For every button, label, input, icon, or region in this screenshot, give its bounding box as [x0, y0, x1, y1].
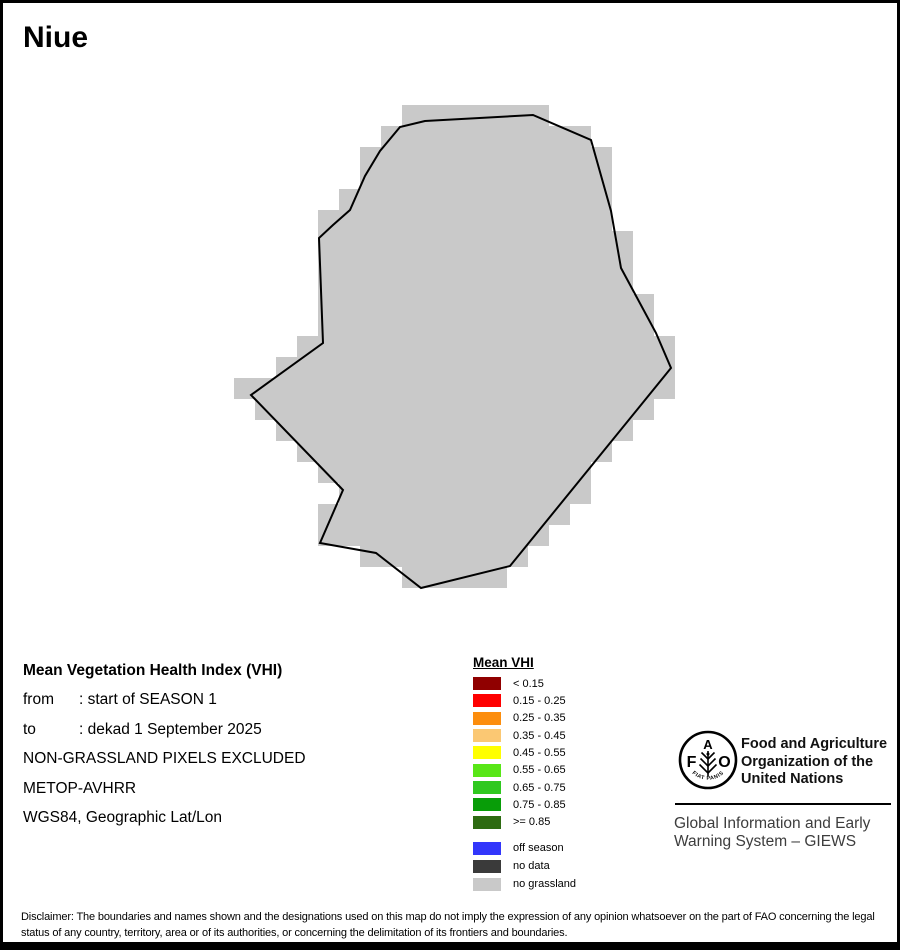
- raster-cell: [444, 462, 465, 483]
- raster-cell: [549, 315, 570, 336]
- raster-cell: [528, 420, 549, 441]
- raster-cell: [549, 147, 570, 168]
- legend-label: 0.35 - 0.45: [513, 730, 566, 742]
- raster-cell: [465, 273, 486, 294]
- raster-cell: [444, 147, 465, 168]
- raster-cell: [549, 252, 570, 273]
- raster-cell: [402, 210, 423, 231]
- legend-swatch: [473, 677, 501, 690]
- raster-cell: [549, 441, 570, 462]
- raster-cell: [423, 357, 444, 378]
- raster-cell: [591, 315, 612, 336]
- info-row-label: to: [23, 715, 79, 744]
- legend-row: off season: [473, 839, 576, 857]
- raster-cell: [360, 525, 381, 546]
- raster-cell: [528, 189, 549, 210]
- raster-cell: [423, 462, 444, 483]
- raster-cell: [549, 168, 570, 189]
- raster-cell: [423, 546, 444, 567]
- raster-cell: [570, 378, 591, 399]
- legend-label: >= 0.85: [513, 816, 550, 828]
- raster-cell: [549, 483, 570, 504]
- info-heading: Mean Vegetation Health Index (VHI): [23, 656, 306, 685]
- raster-cell: [423, 210, 444, 231]
- raster-cell: [507, 210, 528, 231]
- raster-cell: [381, 441, 402, 462]
- raster-cell: [507, 315, 528, 336]
- raster-cell: [465, 168, 486, 189]
- raster-cell: [360, 420, 381, 441]
- raster-cell: [591, 252, 612, 273]
- raster-cell: [528, 399, 549, 420]
- raster-cell: [486, 378, 507, 399]
- raster-cell: [423, 105, 444, 126]
- raster-cell: [612, 357, 633, 378]
- raster-cell: [570, 231, 591, 252]
- raster-cell: [381, 357, 402, 378]
- raster-cell: [360, 357, 381, 378]
- raster-cell: [654, 378, 675, 399]
- legend-swatch: [473, 781, 501, 794]
- raster-cell: [528, 483, 549, 504]
- raster-cell: [528, 462, 549, 483]
- raster-cell: [423, 273, 444, 294]
- raster-cell: [360, 336, 381, 357]
- raster-cell: [339, 420, 360, 441]
- info-row: METOP-AVHRR: [23, 774, 306, 803]
- raster-cell: [423, 294, 444, 315]
- info-row-value: WGS84, Geographic Lat/Lon: [23, 809, 222, 826]
- raster-cell: [339, 294, 360, 315]
- legend-swatch: [473, 712, 501, 725]
- raster-cell: [318, 420, 339, 441]
- raster-cell: [486, 357, 507, 378]
- raster-cell: [339, 231, 360, 252]
- raster-cell: [423, 399, 444, 420]
- legend-label: no data: [513, 860, 550, 872]
- raster-cell: [486, 105, 507, 126]
- raster-cell: [423, 336, 444, 357]
- raster-cell: [549, 462, 570, 483]
- legend-label: 0.15 - 0.25: [513, 695, 566, 707]
- raster-cell: [570, 294, 591, 315]
- raster-cell: [465, 189, 486, 210]
- legend-swatch: [473, 694, 501, 707]
- raster-cell: [402, 504, 423, 525]
- legend-title: Mean VHI: [473, 655, 576, 670]
- raster-cell: [465, 462, 486, 483]
- raster-cell: [465, 231, 486, 252]
- raster-cell: [507, 168, 528, 189]
- legend-row: no data: [473, 857, 576, 875]
- raster-cell: [486, 168, 507, 189]
- raster-cell: [465, 546, 486, 567]
- legend-row: < 0.15: [473, 675, 576, 692]
- raster-cell: [507, 462, 528, 483]
- raster-cell: [444, 357, 465, 378]
- vhi-legend: Mean VHI < 0.150.15 - 0.250.25 - 0.350.3…: [473, 655, 576, 894]
- legend-label: 0.45 - 0.55: [513, 747, 566, 759]
- raster-cell: [444, 252, 465, 273]
- giews-subtitle-line: Global Information and Early: [674, 815, 870, 833]
- raster-cell: [381, 252, 402, 273]
- legend-swatch: [473, 878, 501, 891]
- raster-cell: [381, 189, 402, 210]
- info-row: WGS84, Geographic Lat/Lon: [23, 803, 306, 832]
- raster-cell: [486, 336, 507, 357]
- raster-cell: [297, 399, 318, 420]
- raster-cell: [591, 357, 612, 378]
- raster-cell: [486, 273, 507, 294]
- raster-cell: [402, 189, 423, 210]
- raster-cell: [444, 168, 465, 189]
- info-row-value: : dekad 1 September 2025: [79, 721, 262, 738]
- raster-cell: [570, 273, 591, 294]
- raster-cell: [381, 315, 402, 336]
- legend-label: 0.25 - 0.35: [513, 712, 566, 724]
- raster-cell: [486, 525, 507, 546]
- raster-cell: [381, 294, 402, 315]
- fao-logo-letter-a: A: [703, 737, 713, 752]
- raster-cell: [402, 525, 423, 546]
- raster-cell: [339, 462, 360, 483]
- raster-cell: [444, 399, 465, 420]
- raster-cell: [360, 294, 381, 315]
- raster-cell: [423, 252, 444, 273]
- raster-cell: [339, 504, 360, 525]
- raster-cell: [486, 420, 507, 441]
- info-rows: from: start of SEASON 1to: dekad 1 Septe…: [23, 685, 306, 832]
- raster-cell: [549, 294, 570, 315]
- legend-label: off season: [513, 842, 564, 854]
- raster-cell: [360, 399, 381, 420]
- info-row-label: from: [23, 685, 79, 714]
- raster-cell: [570, 336, 591, 357]
- raster-cell: [444, 315, 465, 336]
- raster-cell: [507, 189, 528, 210]
- raster-cell: [318, 336, 339, 357]
- raster-cell: [528, 441, 549, 462]
- legend-row: 0.25 - 0.35: [473, 710, 576, 727]
- legend-extra-list: off seasonno datano grassland: [473, 839, 576, 894]
- legend-swatch: [473, 764, 501, 777]
- raster-cell: [486, 231, 507, 252]
- raster-cell: [507, 294, 528, 315]
- raster-cell: [339, 378, 360, 399]
- raster-cell: [570, 315, 591, 336]
- raster-cell: [402, 567, 423, 588]
- raster-cell: [360, 378, 381, 399]
- fao-name-line: Organization of the: [741, 754, 887, 772]
- raster-cell: [528, 210, 549, 231]
- legend-swatch: [473, 729, 501, 742]
- raster-cell: [507, 525, 528, 546]
- raster-cell: [402, 420, 423, 441]
- fao-name-line: United Nations: [741, 771, 887, 789]
- raster-cell: [339, 525, 360, 546]
- raster-cell: [402, 546, 423, 567]
- raster-cell: [486, 126, 507, 147]
- raster-cell: [339, 336, 360, 357]
- fao-name-line: Food and Agriculture: [741, 736, 887, 754]
- raster-cell: [528, 273, 549, 294]
- raster-cell: [360, 231, 381, 252]
- raster-cell: [444, 546, 465, 567]
- raster-cell: [528, 378, 549, 399]
- raster-cell: [381, 420, 402, 441]
- raster-cell: [402, 126, 423, 147]
- raster-cell: [549, 336, 570, 357]
- raster-cell: [402, 462, 423, 483]
- raster-cell: [612, 399, 633, 420]
- raster-cell: [507, 378, 528, 399]
- raster-cell: [570, 252, 591, 273]
- raster-cell: [465, 441, 486, 462]
- raster-cell: [402, 147, 423, 168]
- raster-cell: [318, 462, 339, 483]
- raster-cell: [570, 168, 591, 189]
- raster-cell: [318, 441, 339, 462]
- raster-cell: [486, 147, 507, 168]
- raster-cell: [255, 378, 276, 399]
- raster-cell: [360, 504, 381, 525]
- raster-cell: [570, 147, 591, 168]
- raster-cell: [612, 336, 633, 357]
- raster-cell: [549, 231, 570, 252]
- raster-cell: [507, 126, 528, 147]
- raster-cell: [486, 294, 507, 315]
- raster-cell: [507, 357, 528, 378]
- raster-cell: [591, 420, 612, 441]
- giews-subtitle: Global Information and EarlyWarning Syst…: [674, 815, 870, 850]
- raster-cell: [507, 336, 528, 357]
- info-row: from: start of SEASON 1: [23, 685, 306, 714]
- raster-cell: [528, 126, 549, 147]
- raster-cell: [465, 252, 486, 273]
- raster-cell: [318, 378, 339, 399]
- map-raster-layer: [234, 105, 675, 588]
- raster-cell: [444, 210, 465, 231]
- legend-row: 0.15 - 0.25: [473, 692, 576, 709]
- raster-cell: [549, 357, 570, 378]
- fao-logo-letter-f: F: [687, 754, 697, 771]
- raster-cell: [465, 378, 486, 399]
- raster-cell: [444, 483, 465, 504]
- raster-cell: [570, 441, 591, 462]
- raster-cell: [570, 357, 591, 378]
- raster-cell: [360, 273, 381, 294]
- raster-cell: [528, 315, 549, 336]
- raster-cell: [318, 231, 339, 252]
- raster-cell: [444, 231, 465, 252]
- raster-cell: [444, 420, 465, 441]
- raster-cell: [444, 105, 465, 126]
- raster-cell: [465, 147, 486, 168]
- raster-cell: [276, 378, 297, 399]
- raster-cell: [549, 378, 570, 399]
- info-row-value: METOP-AVHRR: [23, 780, 136, 797]
- raster-cell: [402, 273, 423, 294]
- legend-label: 0.75 - 0.85: [513, 799, 566, 811]
- raster-cell: [381, 504, 402, 525]
- raster-cell: [528, 525, 549, 546]
- info-row-value: : start of SEASON 1: [79, 691, 217, 708]
- raster-cell: [444, 378, 465, 399]
- raster-cell: [423, 525, 444, 546]
- legend-swatch: [473, 798, 501, 811]
- legend-row: 0.55 - 0.65: [473, 762, 576, 779]
- raster-cell: [549, 273, 570, 294]
- raster-cell: [402, 483, 423, 504]
- fao-name: Food and AgricultureOrganization of theU…: [741, 736, 887, 789]
- legend-swatch: [473, 842, 501, 855]
- raster-cell: [486, 315, 507, 336]
- raster-cell: [486, 189, 507, 210]
- raster-cell: [381, 483, 402, 504]
- legend-swatch: [473, 816, 501, 829]
- legend-row: 0.35 - 0.45: [473, 727, 576, 744]
- raster-cell: [381, 525, 402, 546]
- raster-cell: [549, 420, 570, 441]
- raster-cell: [381, 336, 402, 357]
- legend-row: 0.45 - 0.55: [473, 744, 576, 761]
- raster-cell: [612, 315, 633, 336]
- raster-cell: [381, 273, 402, 294]
- raster-cell: [612, 378, 633, 399]
- legend-swatch: [473, 746, 501, 759]
- raster-cell: [402, 252, 423, 273]
- map-page: Niue Mean Vegetation Health Index (VHI) …: [0, 0, 900, 950]
- raster-cell: [402, 315, 423, 336]
- raster-cell: [423, 147, 444, 168]
- legend-swatch: [473, 860, 501, 873]
- raster-cell: [381, 462, 402, 483]
- legend-class-list: < 0.150.15 - 0.250.25 - 0.350.35 - 0.450…: [473, 675, 576, 831]
- raster-cell: [528, 147, 549, 168]
- raster-cell: [360, 147, 381, 168]
- legend-row: >= 0.85: [473, 814, 576, 831]
- raster-cell: [486, 399, 507, 420]
- raster-cell: [591, 210, 612, 231]
- raster-cell: [339, 441, 360, 462]
- raster-cell: [612, 294, 633, 315]
- raster-cell: [297, 441, 318, 462]
- raster-cell: [402, 168, 423, 189]
- raster-cell: [381, 231, 402, 252]
- raster-cell: [465, 525, 486, 546]
- raster-cell: [465, 126, 486, 147]
- raster-cell: [591, 399, 612, 420]
- disclaimer-text: Disclaimer: The boundaries and names sho…: [21, 909, 889, 942]
- raster-cell: [486, 210, 507, 231]
- raster-cell: [402, 294, 423, 315]
- raster-cell: [360, 546, 381, 567]
- raster-cell: [465, 399, 486, 420]
- raster-cell: [507, 252, 528, 273]
- raster-cell: [465, 504, 486, 525]
- raster-cell: [360, 315, 381, 336]
- raster-cell: [423, 231, 444, 252]
- raster-cell: [549, 189, 570, 210]
- raster-cell: [486, 504, 507, 525]
- raster-cell: [402, 399, 423, 420]
- info-row: to: dekad 1 September 2025: [23, 715, 306, 744]
- raster-cell: [276, 399, 297, 420]
- info-row: NON-GRASSLAND PIXELS EXCLUDED: [23, 744, 306, 773]
- raster-cell: [507, 147, 528, 168]
- map-info-block: Mean Vegetation Health Index (VHI) from:…: [23, 656, 306, 832]
- raster-cell: [570, 420, 591, 441]
- raster-cell: [297, 420, 318, 441]
- raster-cell: [339, 357, 360, 378]
- raster-cell: [360, 252, 381, 273]
- raster-cell: [339, 273, 360, 294]
- raster-cell: [465, 420, 486, 441]
- legend-label: no grassland: [513, 878, 576, 890]
- raster-cell: [360, 189, 381, 210]
- raster-cell: [318, 357, 339, 378]
- org-divider: [675, 803, 891, 805]
- raster-cell: [528, 252, 549, 273]
- raster-cell: [381, 210, 402, 231]
- raster-cell: [423, 189, 444, 210]
- raster-cell: [360, 441, 381, 462]
- raster-cell: [570, 483, 591, 504]
- raster-cell: [339, 252, 360, 273]
- fao-logo-letter-o: O: [718, 754, 730, 771]
- raster-cell: [528, 294, 549, 315]
- raster-cell: [591, 231, 612, 252]
- legend-label: 0.55 - 0.65: [513, 764, 566, 776]
- raster-cell: [549, 399, 570, 420]
- raster-cell: [486, 252, 507, 273]
- raster-cell: [381, 399, 402, 420]
- legend-row: no grassland: [473, 875, 576, 893]
- raster-cell: [528, 357, 549, 378]
- raster-cell: [423, 126, 444, 147]
- raster-cell: [444, 336, 465, 357]
- raster-cell: [570, 189, 591, 210]
- raster-cell: [465, 315, 486, 336]
- raster-cell: [402, 357, 423, 378]
- raster-cell: [486, 546, 507, 567]
- raster-cell: [318, 399, 339, 420]
- legend-row: 0.65 - 0.75: [473, 779, 576, 796]
- raster-cell: [465, 336, 486, 357]
- raster-cell: [423, 483, 444, 504]
- legend-label: < 0.15: [513, 678, 544, 690]
- raster-cell: [444, 525, 465, 546]
- raster-cell: [339, 315, 360, 336]
- raster-cell: [465, 210, 486, 231]
- raster-cell: [465, 105, 486, 126]
- raster-cell: [360, 483, 381, 504]
- raster-cell: [486, 462, 507, 483]
- giews-subtitle-line: Warning System – GIEWS: [674, 833, 870, 851]
- raster-cell: [633, 357, 654, 378]
- raster-cell: [381, 378, 402, 399]
- raster-cell: [402, 231, 423, 252]
- legend-label: 0.65 - 0.75: [513, 782, 566, 794]
- wheat-grain-dot: [707, 753, 710, 756]
- raster-cell: [591, 336, 612, 357]
- raster-cell: [423, 168, 444, 189]
- fao-logo-icon: A F O FIAT PANIS: [677, 729, 739, 791]
- raster-cell: [591, 273, 612, 294]
- raster-cell: [570, 210, 591, 231]
- raster-cell: [339, 210, 360, 231]
- raster-cell: [507, 399, 528, 420]
